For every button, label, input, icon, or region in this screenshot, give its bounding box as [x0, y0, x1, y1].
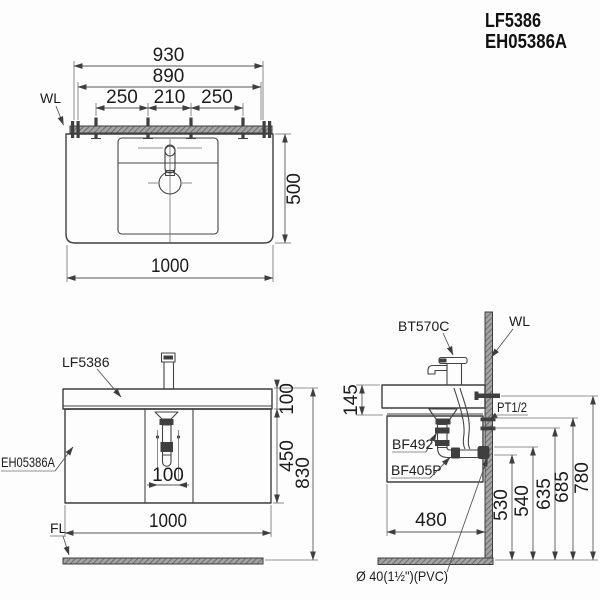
dim-890: 890 [153, 66, 185, 87]
dim-100-drain: 100 [152, 465, 184, 486]
installation-drawing-page: LF5386 EH05386A [0, 0, 600, 600]
water-inlet-lower [481, 427, 496, 431]
dim-210: 210 [154, 87, 186, 108]
dim-530: 530 [491, 489, 512, 521]
wall-line-label-top: WL [40, 90, 61, 106]
water-inlet-upper [481, 418, 496, 422]
header-model-secondary: EH05386A [485, 31, 567, 53]
dim-685: 685 [552, 471, 573, 503]
pipe-spec-label: Ø 40(1½")(PVC) [356, 568, 448, 584]
dim-930: 930 [153, 45, 185, 66]
trap-fitting-label: BF405P [391, 462, 442, 478]
header-model-primary: LF5386 [485, 10, 541, 32]
wall-line-label-side: WL [509, 313, 530, 329]
drawing-svg: LF5386 EH05386A [0, 0, 600, 600]
floor-bar-side [378, 558, 493, 565]
faucet-model-label: BT570C [398, 318, 449, 334]
dim-1000-top-view: 1000 [151, 256, 189, 277]
dim-100-basin-height: 100 [277, 383, 298, 415]
dim-145: 145 [341, 384, 362, 416]
floor-line-label: FL [50, 520, 67, 536]
mounting-bolt-side [477, 394, 500, 399]
dim-250-right: 250 [201, 87, 233, 108]
dim-1000-front-view: 1000 [149, 511, 187, 532]
dim-830: 830 [293, 457, 314, 489]
dim-540: 540 [512, 485, 533, 517]
cabinet-model-label: EH05386A [1, 454, 56, 470]
floor-bar-front [63, 558, 263, 564]
inlet-label: PT1/2 [497, 399, 527, 415]
dim-480: 480 [415, 510, 447, 531]
dim-500: 500 [284, 173, 305, 205]
dim-250-left: 250 [106, 87, 138, 108]
basin-model-label: LF5386 [62, 354, 110, 370]
wall-outlet [478, 446, 490, 459]
dim-780: 780 [572, 462, 593, 494]
